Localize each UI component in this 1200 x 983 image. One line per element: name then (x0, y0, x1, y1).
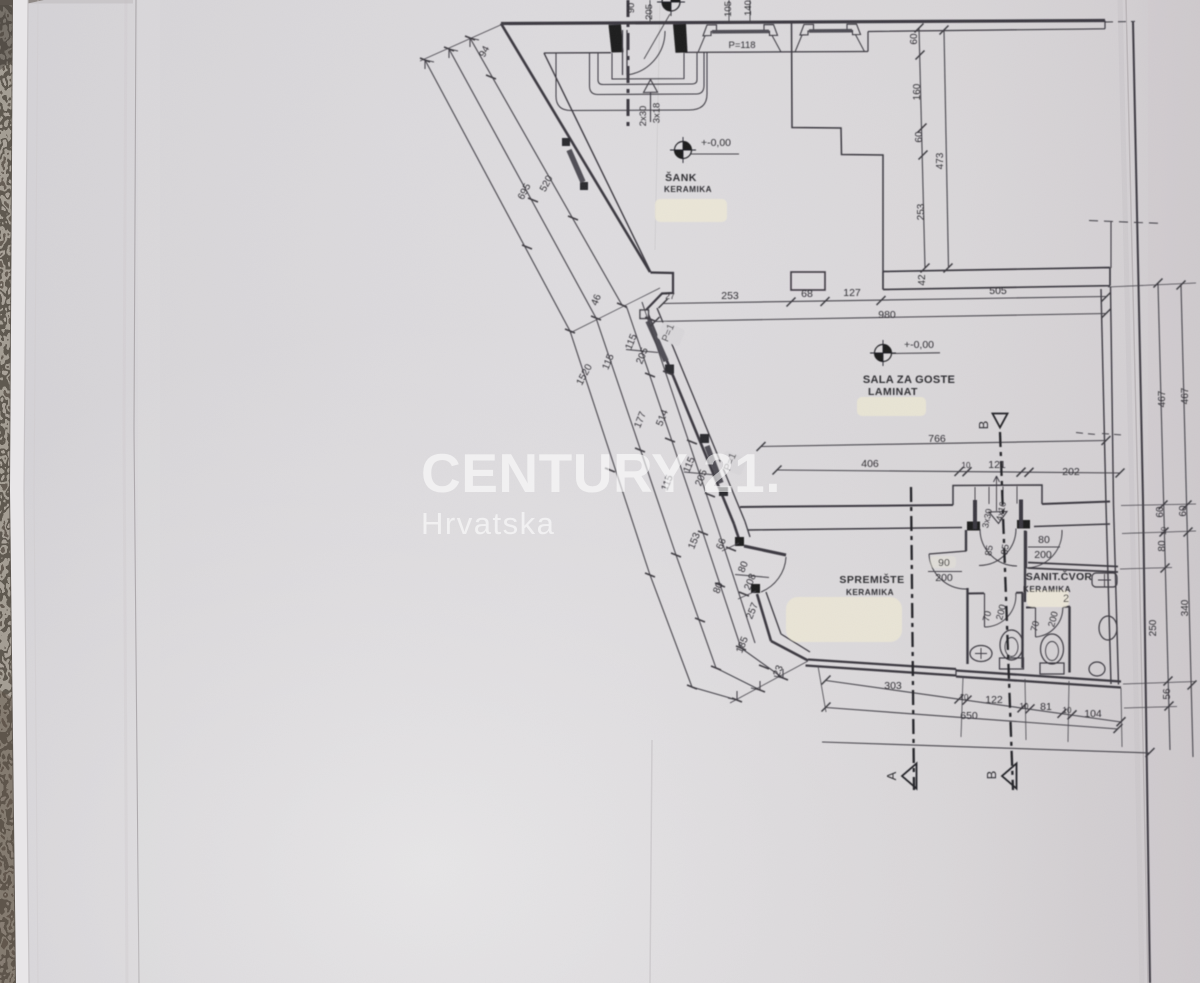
svg-text:Hrvatska: Hrvatska (421, 506, 555, 541)
svg-text:CENTURY 21.: CENTURY 21. (421, 442, 781, 504)
